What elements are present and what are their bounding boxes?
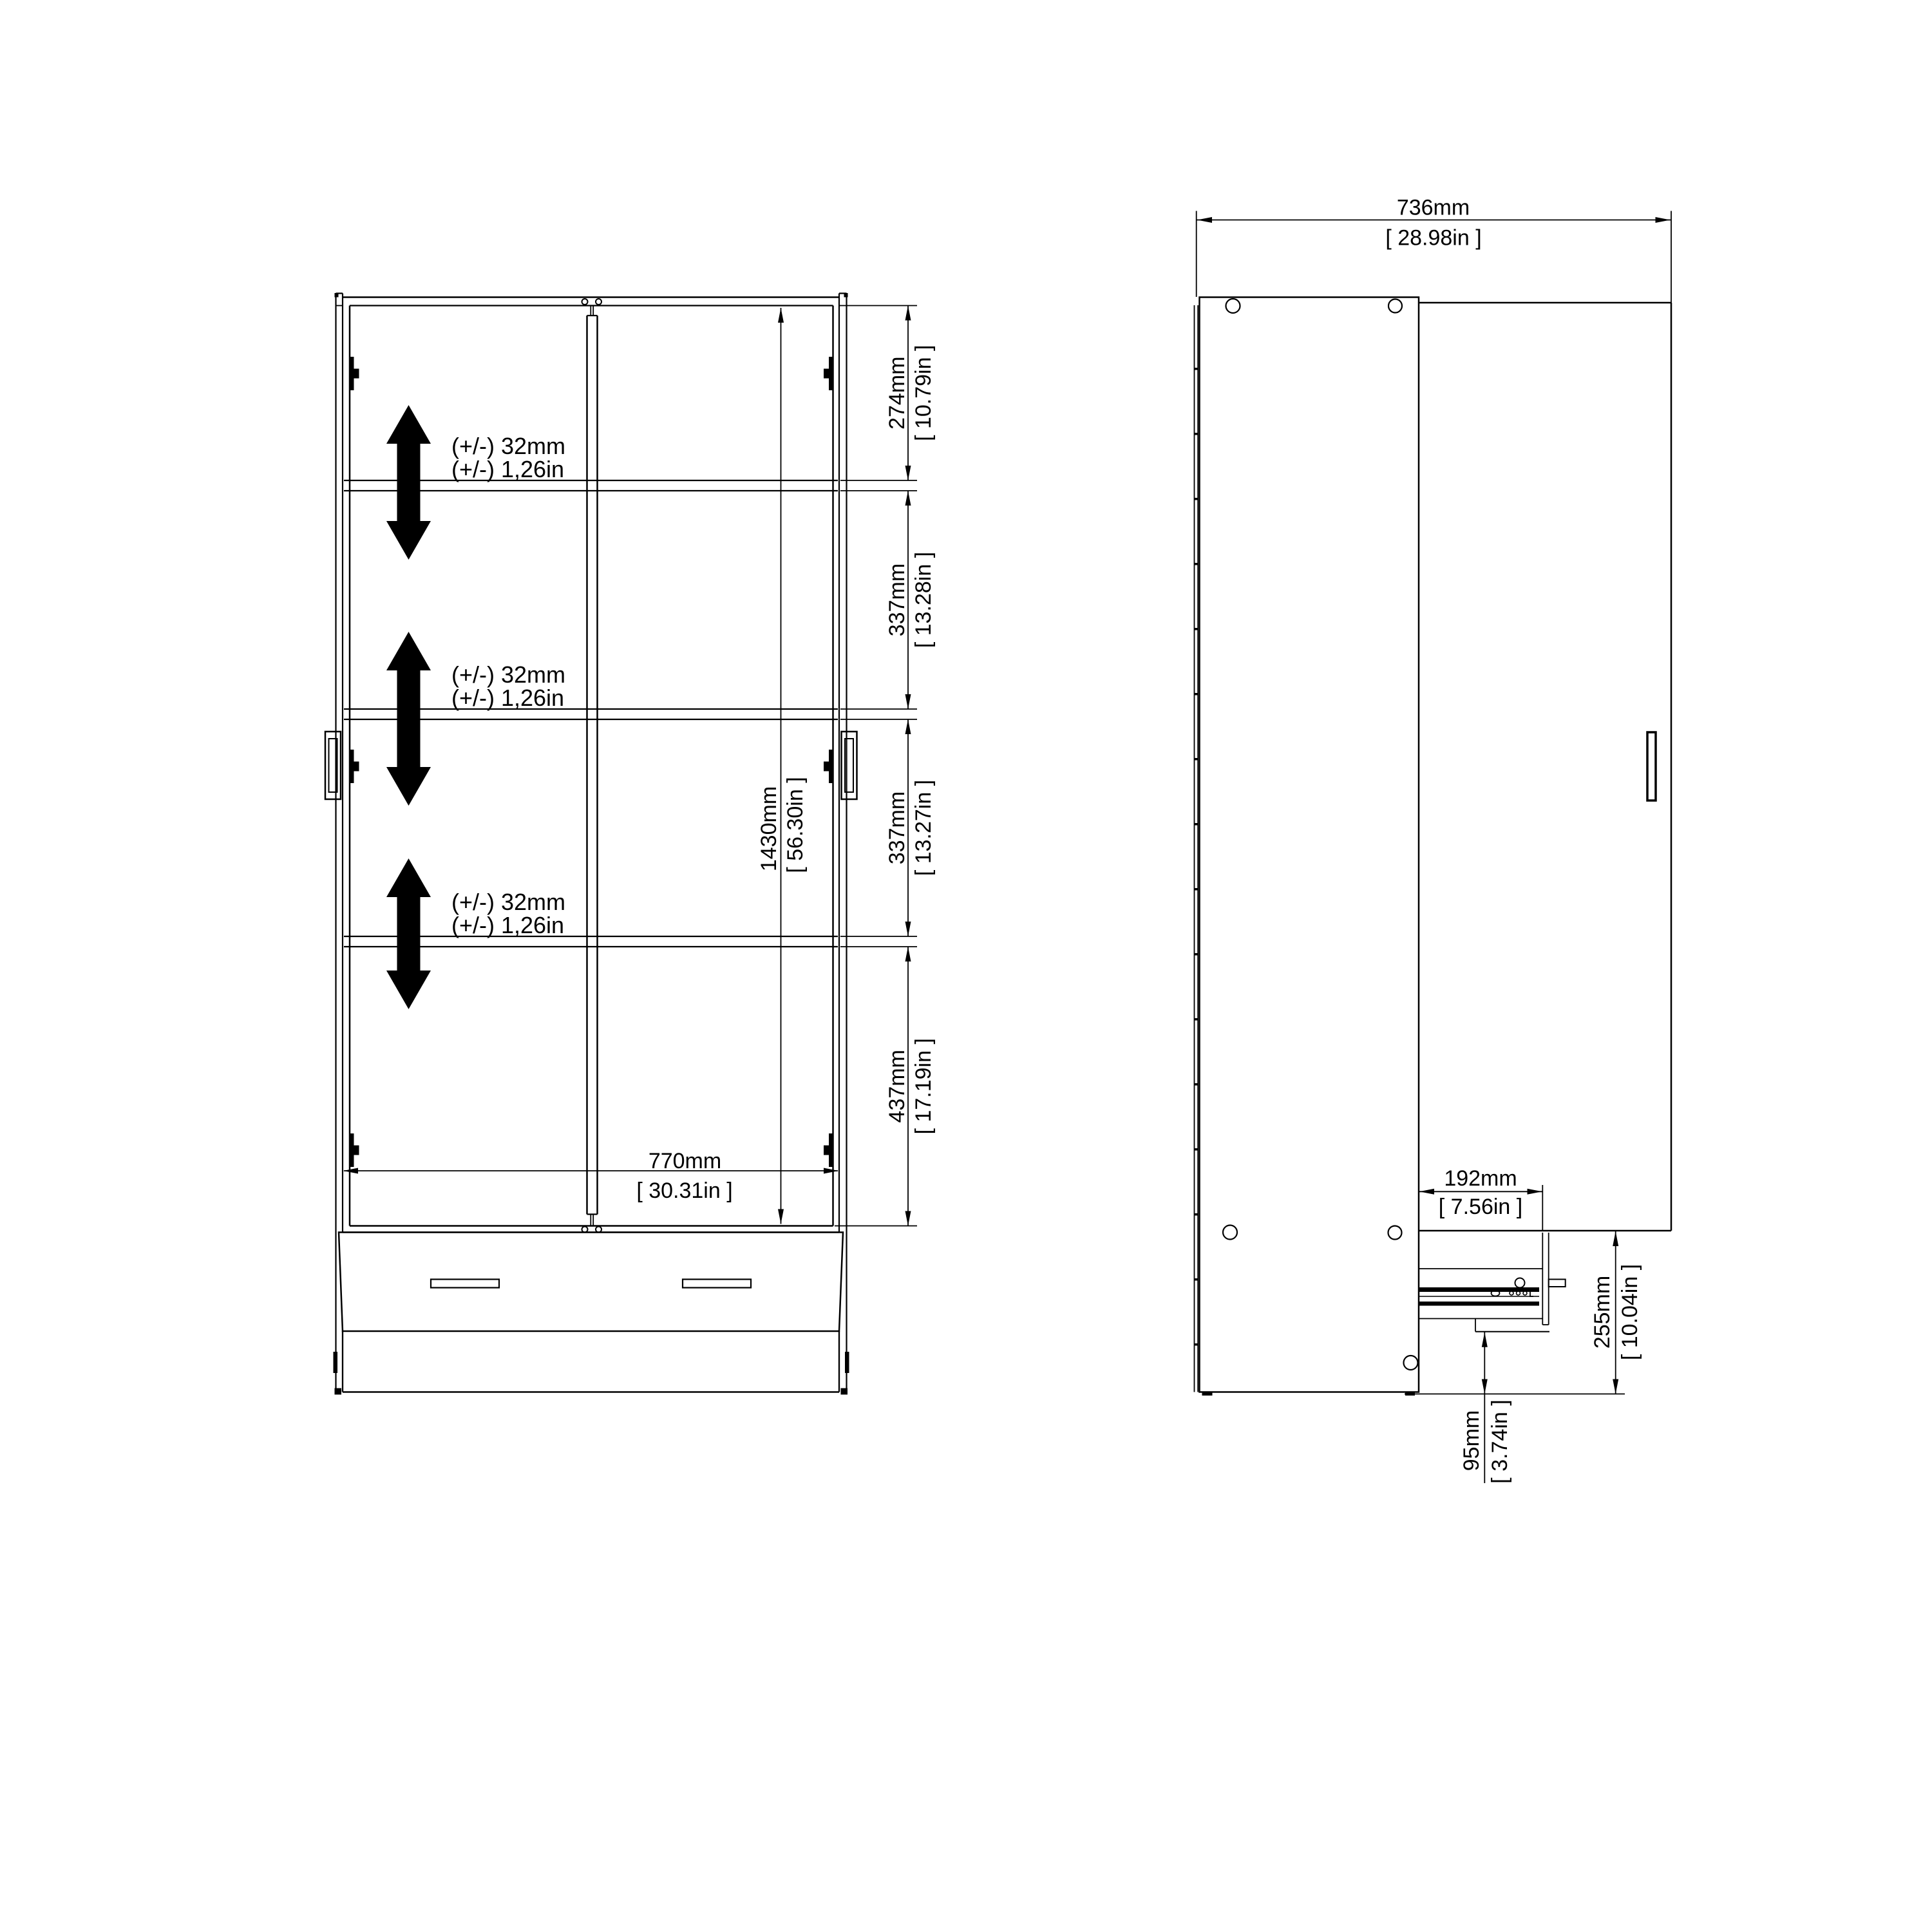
- svg-text:1430mm: 1430mm: [757, 786, 781, 871]
- svg-text:[ 28.98in ]: [ 28.98in ]: [1385, 226, 1481, 251]
- svg-text:[ 13.27in ]: [ 13.27in ]: [911, 780, 936, 876]
- svg-text:736mm: 736mm: [1397, 196, 1470, 220]
- svg-text:[ 17.19in ]: [ 17.19in ]: [911, 1038, 936, 1134]
- svg-text:[ 13.28in ]: [ 13.28in ]: [911, 552, 936, 648]
- svg-text:[ 7.56in ]: [ 7.56in ]: [1439, 1195, 1522, 1219]
- svg-text:(+/-) 1,26in: (+/-) 1,26in: [451, 456, 564, 482]
- svg-text:[ 10.04in ]: [ 10.04in ]: [1618, 1264, 1642, 1360]
- svg-text:337mm: 337mm: [885, 563, 909, 636]
- svg-text:(+/-) 32mm: (+/-) 32mm: [451, 661, 565, 688]
- svg-text:(+/-) 1,26in: (+/-) 1,26in: [451, 685, 564, 711]
- svg-text:(+/-) 32mm: (+/-) 32mm: [451, 889, 565, 915]
- svg-text:95mm: 95mm: [1459, 1410, 1484, 1471]
- svg-text:(+/-) 1,26in: (+/-) 1,26in: [451, 912, 564, 938]
- svg-text:274mm: 274mm: [885, 357, 909, 430]
- svg-text:255mm: 255mm: [1590, 1276, 1615, 1349]
- svg-text:[ 30.31in ]: [ 30.31in ]: [636, 1179, 732, 1203]
- svg-text:[ 3.74in ]: [ 3.74in ]: [1488, 1399, 1512, 1483]
- svg-text:192mm: 192mm: [1444, 1166, 1517, 1191]
- svg-text:337mm: 337mm: [885, 791, 909, 864]
- svg-text:437mm: 437mm: [885, 1050, 909, 1122]
- svg-text:[ 56.30in ]: [ 56.30in ]: [783, 777, 808, 873]
- svg-text:[ 10.79in ]: [ 10.79in ]: [911, 345, 936, 441]
- svg-text:(+/-) 32mm: (+/-) 32mm: [451, 433, 565, 459]
- svg-text:770mm: 770mm: [649, 1149, 721, 1173]
